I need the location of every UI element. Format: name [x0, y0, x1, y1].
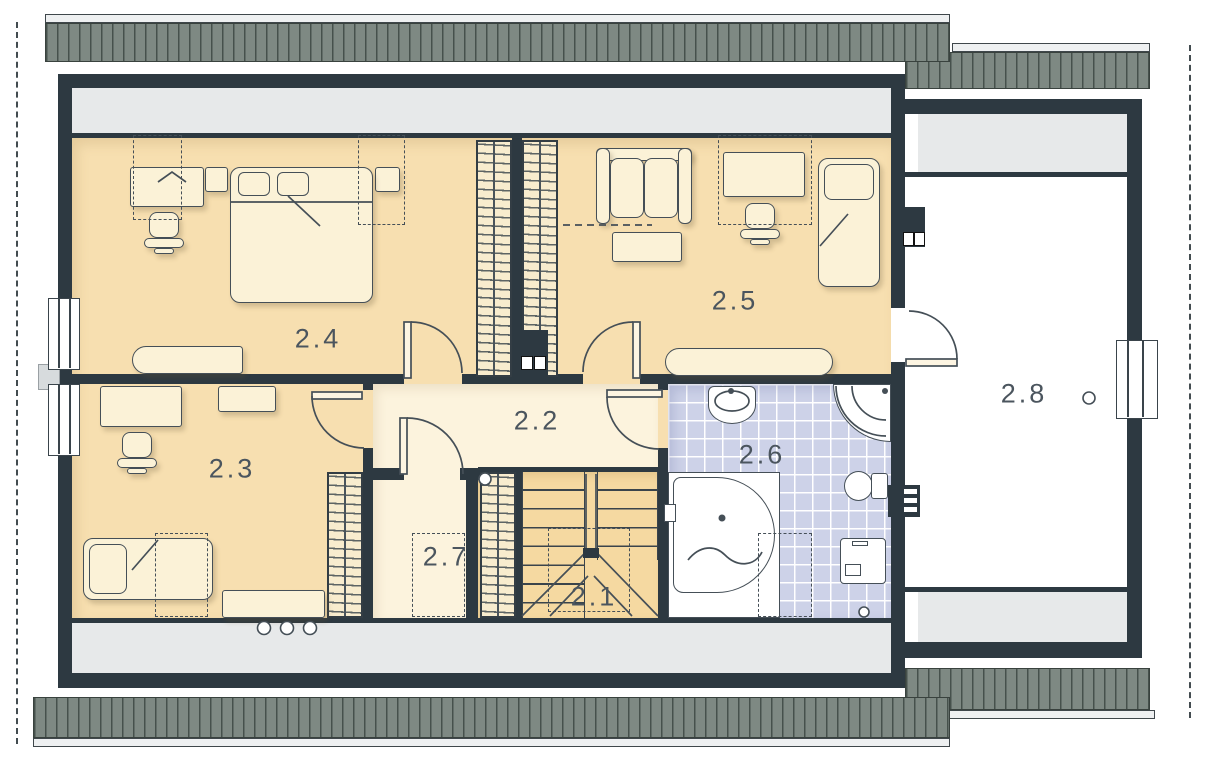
sofa-armrest	[678, 148, 692, 224]
room-label-2-7: 2.7	[423, 542, 470, 573]
chimney-flue	[914, 232, 925, 246]
roof-window-dashed	[133, 135, 182, 220]
office-chair-back	[117, 458, 157, 468]
room-label-2-6: 2.6	[739, 440, 786, 471]
office-chair-back	[740, 229, 780, 239]
bench-icon	[665, 348, 833, 376]
roof-eave-main-bottom	[33, 738, 950, 747]
wall-2-3-corridor-jamb	[363, 384, 373, 390]
plot-boundary-dashed-right	[1189, 45, 1191, 718]
bath-faucet-icon	[664, 504, 676, 522]
outer-wall-bottom	[58, 673, 905, 688]
pillow-icon	[238, 172, 270, 196]
room-label-2-3: 2.3	[209, 454, 256, 485]
outer-wall-top	[58, 74, 905, 88]
office-chair-base	[154, 248, 174, 254]
office-chair-base	[127, 468, 147, 474]
room-label-2-1: 2.1	[571, 582, 618, 613]
roof-eave-main-top	[45, 14, 950, 23]
room-label-2-5: 2.5	[712, 286, 759, 317]
washbasin-icon	[708, 386, 756, 424]
low-headroom-dashed	[758, 533, 812, 617]
office-chair-back	[144, 238, 184, 248]
wall-bath-left	[658, 448, 668, 618]
chimney-flue	[903, 232, 914, 246]
room-label-2-8: 2.8	[1001, 379, 1048, 410]
nightstand-icon	[205, 167, 228, 192]
toilet-icon	[844, 471, 873, 501]
duct-vent	[904, 498, 917, 503]
chimney-flue	[534, 356, 546, 370]
wall-2-4-2-3	[72, 374, 404, 384]
washing-machine-handle	[852, 541, 868, 546]
washing-machine-drawer	[845, 564, 861, 576]
coffee-table-icon	[612, 232, 682, 262]
knee-wall-strip-top	[72, 88, 891, 133]
window-icon	[48, 384, 80, 456]
plot-boundary-dashed-left	[16, 22, 18, 744]
outer-wall-right-upper	[891, 74, 905, 308]
pillow-icon	[89, 544, 127, 594]
roof-window-dashed	[155, 533, 208, 617]
sofa-armrest	[596, 148, 610, 224]
garage-knee-line-top	[905, 172, 1127, 177]
roof-window-dashed	[718, 135, 812, 225]
sofa-icon	[132, 346, 243, 374]
room-label-2-4: 2.4	[295, 324, 342, 355]
garage-knee-strip-top	[918, 114, 1127, 172]
outer-wall-right-lower	[891, 362, 905, 688]
garage-wall-top	[905, 99, 1142, 114]
duct-vent	[904, 507, 917, 512]
roof-eave-garage-top	[952, 43, 1150, 52]
chimney-flue	[521, 356, 533, 370]
roof-window-dashed	[358, 135, 405, 225]
sofa-cushion	[610, 158, 644, 218]
desk-icon	[100, 386, 182, 427]
floor-plan: 2.1 2.2 2.3 2.4 2.5 2.6 2.7 2.8	[0, 0, 1207, 761]
garage-knee-strip-bottom	[918, 592, 1127, 642]
room-label-2-2: 2.2	[514, 406, 561, 437]
wardrobe-icon	[327, 472, 363, 618]
roof-hatch-main-top	[45, 23, 950, 62]
duct-vent	[904, 489, 917, 494]
toilet-tank	[871, 473, 888, 499]
garage-wall-bottom	[905, 642, 1142, 658]
cabinet-icon	[222, 590, 325, 618]
pillow-icon	[277, 172, 309, 196]
window-icon	[48, 298, 80, 370]
wall-bath-jamb	[658, 384, 668, 390]
knee-wall-strip-bottom	[72, 623, 891, 673]
wall-corridor-2-7-left	[363, 468, 404, 480]
office-chair-base	[750, 239, 770, 245]
wardrobe-icon	[476, 140, 512, 377]
office-chair-icon	[122, 432, 152, 458]
sofa-cushion	[644, 158, 678, 218]
pillow-icon	[824, 164, 874, 200]
side-table-icon	[218, 386, 276, 412]
outer-wall-left	[58, 74, 72, 688]
window-icon	[1116, 340, 1158, 419]
wardrobe-icon	[480, 472, 516, 618]
roof-hatch-main-bottom	[33, 697, 950, 738]
